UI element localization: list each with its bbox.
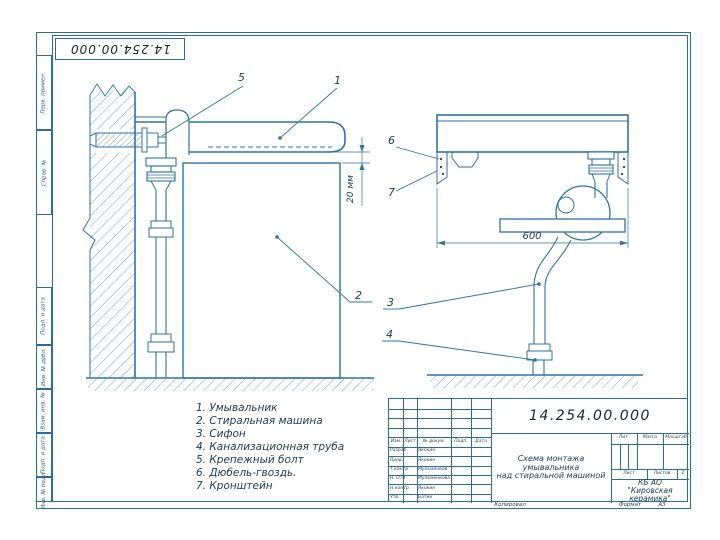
format-value: А3 — [652, 502, 672, 510]
staff-role: Т.контр. — [390, 466, 417, 475]
wall-section — [83, 84, 141, 378]
parts-list-item: 4. Канализационная труба — [196, 441, 344, 454]
parts-list-item: 1. Умывальник — [196, 402, 344, 415]
parts-list-item: 7. Кронштейн — [196, 480, 344, 493]
divider — [471, 399, 472, 503]
callout-4: 4 — [386, 328, 393, 341]
format-label: Формат — [608, 502, 652, 510]
parts-list-item: 2. Стиральная машина — [196, 415, 344, 428]
divider — [389, 409, 491, 410]
staff-name: Мульменков — [418, 466, 451, 475]
washing-machine — [183, 163, 340, 378]
siphon-side — [146, 158, 176, 378]
staff-role: Н. ОТК — [390, 475, 417, 484]
drawing-sheet: 14.254.00.000 Перв. примен. Справ. № Под… — [0, 0, 720, 540]
floor-left — [86, 378, 374, 391]
callout-3: 3 — [387, 296, 394, 309]
sheets-value: 1 — [677, 469, 689, 479]
col-list: Лист — [403, 437, 417, 447]
divider — [389, 418, 491, 419]
staff-name: Якокин — [418, 447, 451, 456]
company-name: КБ АО "Кировская керамика" — [611, 479, 689, 503]
callout-numbers: 5 1 2 6 7 3 4 — [238, 71, 395, 341]
callout-5: 5 — [238, 71, 245, 84]
callout-1: 1 — [334, 74, 341, 87]
mass-label: Масса — [637, 433, 663, 444]
company-name-line: "Кировская керамика" — [611, 487, 689, 503]
col-podp: Подп. — [451, 437, 471, 447]
lit-label: Лит. — [611, 433, 637, 444]
scale-label: Масштаб — [663, 433, 689, 444]
kopiroval-label: Копировал — [470, 502, 550, 510]
col-data: Дата — [471, 437, 491, 447]
staff-name: Якокин — [418, 484, 451, 494]
document-title-line: над стиральной машиной — [497, 472, 606, 480]
staff-role: Н.контр. — [390, 484, 417, 494]
siphon-trap — [500, 152, 625, 240]
front-view — [382, 115, 643, 388]
col-dokum: № докум. — [417, 437, 451, 447]
parts-list-item: 5. Крепежный болт — [196, 454, 344, 467]
callout-7: 7 — [388, 186, 395, 199]
parts-list-item: 3. Сифон — [196, 428, 344, 441]
staff-role: Утв. — [390, 494, 417, 503]
staff-name: Якокин — [418, 456, 451, 466]
divider — [389, 428, 491, 429]
staff-name: Мульменкова — [418, 475, 451, 484]
bracket-side — [166, 110, 189, 158]
doc-number: 14.254.00.000 — [491, 399, 689, 433]
dim-600-text: 600 — [522, 231, 541, 242]
bracket-front-left — [437, 152, 447, 184]
staff-role: Разраб. — [390, 447, 417, 456]
callout-2: 2 — [355, 289, 362, 302]
side-view — [83, 84, 374, 391]
divider — [611, 444, 689, 445]
bracket-front-right — [618, 152, 628, 184]
divider — [451, 399, 452, 503]
divider — [620, 444, 621, 469]
dim-20mm-text: 20 мм — [346, 175, 356, 203]
title-block: Изм. Лист № докум. Подп. Дата Разраб. Як… — [388, 398, 688, 502]
col-izm: Изм. — [389, 437, 403, 447]
floor-right — [427, 375, 643, 388]
staff-role: Пров. — [390, 456, 417, 466]
staff-name: Батин — [418, 494, 451, 503]
document-title: Схема монтажа умывальника над стиральной… — [493, 435, 609, 501]
sewer-pipe — [527, 237, 571, 375]
parts-list-item: 6. Дюбель-гвоздь. — [196, 467, 344, 480]
parts-list: 1. Умывальник 2. Стиральная машина 3. Си… — [196, 402, 344, 493]
callout-6: 6 — [388, 134, 395, 147]
leader-lines-right — [382, 147, 541, 362]
divider — [628, 444, 629, 469]
